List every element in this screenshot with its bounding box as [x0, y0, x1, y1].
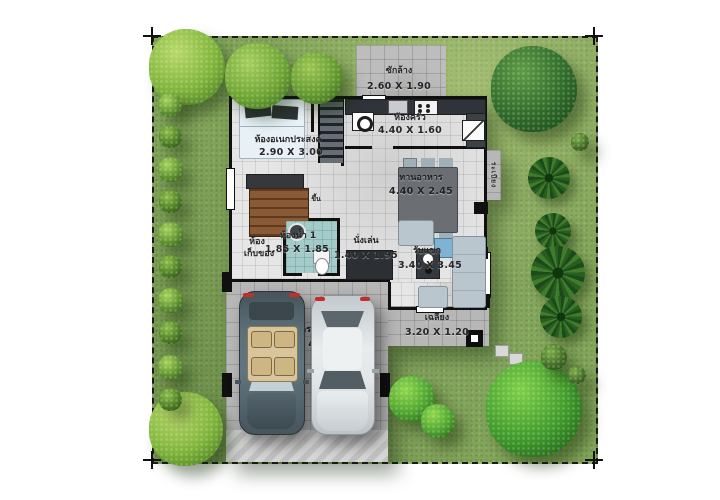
boundary-corner-marker	[143, 451, 161, 469]
windshield	[319, 371, 366, 389]
cabin-interior	[247, 326, 298, 382]
taillight-icon	[243, 293, 254, 297]
car-sedan	[311, 295, 375, 435]
rear-window	[321, 311, 364, 327]
taillight-icon	[289, 293, 300, 297]
boundary-corner-marker	[585, 451, 603, 469]
seat	[274, 357, 295, 376]
side-mirror-icon	[235, 380, 241, 384]
boundary-corner-marker	[585, 27, 603, 45]
trunk	[249, 302, 294, 320]
windshield	[249, 382, 294, 391]
car-convertible	[239, 291, 305, 435]
side-mirror-icon	[372, 369, 379, 373]
cars-layer: จอดรถ 5.10 X 4.40	[0, 0, 720, 500]
roof	[323, 328, 362, 370]
hood	[317, 391, 368, 431]
seat	[251, 357, 272, 376]
taillight-icon	[315, 297, 325, 301]
side-mirror-icon	[303, 380, 309, 384]
site-plan: ซักล้าง 2.60 X 1.90 ห้องอเนกประสงค์ 2.90…	[0, 0, 720, 500]
side-mirror-icon	[307, 369, 314, 373]
hood	[247, 393, 296, 429]
seat	[251, 331, 272, 348]
seat	[274, 331, 295, 348]
boundary-corner-marker	[143, 27, 161, 45]
taillight-icon	[360, 297, 370, 301]
